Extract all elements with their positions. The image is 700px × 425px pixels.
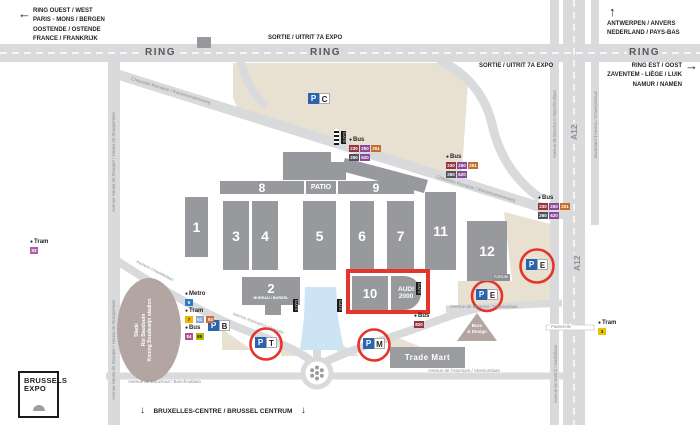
bus-icon: ●: [446, 154, 449, 160]
gate-tag-1: GATE: [293, 299, 298, 312]
atomium-label: Avenue de l'Atomium / Atomiumlaan: [428, 368, 500, 373]
ring-label-center: RING: [308, 47, 343, 58]
forum-tag: FORUM: [492, 274, 510, 281]
buro-design-label: Buro& Design: [457, 323, 497, 334]
ring-label-east: RING: [627, 47, 662, 58]
tram-icon: ●: [598, 320, 601, 326]
bus-stop-trade-mart: ●Bus 820: [414, 313, 429, 329]
metro-tram-bus-stop-stadium: ●Metro 6 ●Tram 7 51 93 ●Bus 84 88: [185, 291, 215, 341]
parking-m: P M: [363, 338, 385, 349]
destinations-north: ANTWERPEN / ANVERSNEDERLAND / PAYS-BAS: [607, 20, 680, 39]
hall-2: 2 BUREAU / BUREEL: [242, 277, 300, 305]
hall-7: 7: [387, 201, 414, 270]
hall-11: 11: [425, 192, 456, 270]
a12-label-1: A12: [569, 123, 579, 141]
bouchout-label-vertical: Avenue de Bouchout / Boechoutlaan: [552, 90, 557, 158]
passerelle-label: Passerelle: [550, 324, 572, 329]
exit-7a-label-right: SORTIE / UITRIT 7A EXPO: [479, 63, 553, 69]
madrid-label: Avenue de Madrid / Madridlaan: [553, 345, 558, 403]
ring-label-west: RING: [143, 47, 178, 58]
houba-label-1: Avenue Houba de Strooper / Houba de Stro…: [111, 112, 116, 212]
hall-4: 4: [252, 201, 278, 270]
a12-label-2: A12: [572, 254, 582, 272]
destinations-west: RING OUEST / WESTPARIS - MONS / BERGEN O…: [33, 7, 105, 44]
bureau-label: BUREAU / BUREEL: [253, 296, 288, 300]
arrow-west-icon: ←: [18, 8, 31, 20]
arrow-east-icon: →: [685, 60, 698, 72]
arrow-down-icon: ↓: [140, 405, 145, 416]
bus-icon: ●: [349, 137, 352, 143]
hall-8: 8: [220, 181, 304, 194]
trade-mart: Trade Mart: [390, 347, 465, 368]
hall-3: 3: [223, 201, 249, 270]
tram-stop-west: ●Tram 93: [30, 239, 48, 255]
bus-icon: ●: [414, 313, 417, 319]
parking-p-icon: P: [476, 289, 487, 300]
tram-icon: ●: [185, 308, 188, 314]
hall-5: 5: [303, 201, 336, 270]
destinations-east: RING EST / OOSTZAVENTEM - LIÈGE / LUIKNA…: [592, 62, 682, 90]
parking-t: P T: [255, 337, 277, 348]
arrow-north-icon: ↑: [609, 6, 616, 18]
miramar-label: Avenue de Miramar / Miramarlaan: [450, 304, 518, 309]
hall-9: 9: [338, 181, 414, 194]
tram-icon: ●: [30, 239, 33, 245]
gate-tag-4: GATE: [341, 131, 346, 144]
brussels-expo-logo: BRUSSELSEXPO: [18, 371, 59, 418]
patio: PATIO: [306, 181, 336, 194]
stadium-label: Stade Roi Baudouin Koning Boudewijn stad…: [134, 284, 154, 376]
hall-1: 1: [185, 197, 208, 257]
exit-7a-label-top: SORTIE / UITRIT 7A EXPO: [268, 35, 342, 41]
tram-stop-east: ●Tram 3: [598, 320, 616, 336]
parking-e-north: P E: [526, 259, 548, 270]
bus-stop-north-1: ●Bus 230250251 260620: [349, 137, 382, 162]
bus-icon: ●: [185, 325, 188, 331]
hall-2-annex: [265, 305, 281, 315]
roundabout: [303, 359, 331, 387]
bouchout-label-bottom: Avenue de Bouchout / Boechoutlaan: [128, 379, 201, 384]
entrance-barrier: [334, 129, 339, 145]
city-centre-direction: ↓ BRUXELLES-CENTRE / BRUSSEL CENTRUM ↓: [140, 400, 306, 418]
houba-label-2: Avenue Houba de Strooper / Houba de Stro…: [111, 300, 116, 400]
north-building-a: [283, 152, 331, 180]
metro-icon: ●: [185, 291, 188, 297]
anvers-label: Boulevard d'Anvers / Antwerpselaan: [593, 91, 598, 158]
arrow-down-icon: ↓: [301, 405, 306, 416]
expo-dome-icon: [33, 405, 45, 411]
bus-stop-east: ●Bus 230250251 260620: [538, 195, 571, 220]
brussels-expo-access-map: ← RING OUEST / WESTPARIS - MONS / BERGEN…: [0, 0, 700, 425]
small-building: [197, 37, 211, 48]
gate-tag-2: GATE: [337, 299, 342, 312]
bus-stop-north-2: ●Bus 230250251 260620: [446, 154, 479, 179]
parking-e-south: P E: [476, 289, 498, 300]
pond: [300, 287, 344, 350]
parking-p-icon: P: [308, 93, 319, 104]
parking-c: P C: [308, 93, 330, 104]
parking-p-icon: P: [255, 337, 266, 348]
parking-p-icon: P: [363, 338, 374, 349]
bus-icon: ●: [538, 195, 541, 201]
hall-6: 6: [350, 201, 374, 270]
gate-tag-3: GATE: [416, 282, 421, 295]
parking-p-icon: P: [526, 259, 537, 270]
north-building-b: [331, 162, 346, 180]
hall-12: 12: [467, 221, 507, 281]
